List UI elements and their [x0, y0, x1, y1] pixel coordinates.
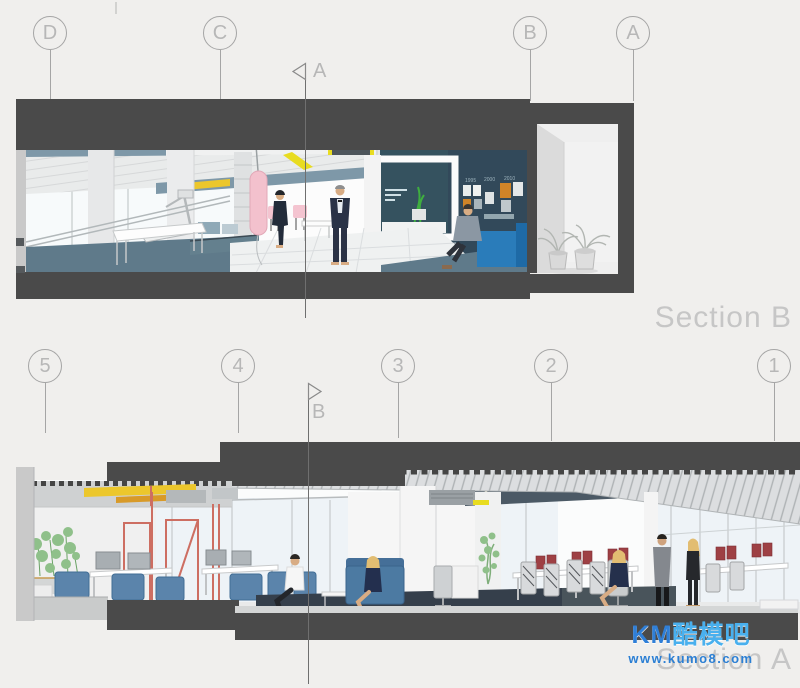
watermark-brand-cjk: 酷模吧 [672, 621, 750, 649]
watermark-brand-latin: KM [632, 621, 673, 649]
drawing-sheet: D C B A 5 4 3 2 1 [0, 0, 800, 688]
grid-stem-a [633, 50, 634, 101]
vestibule [527, 124, 618, 274]
section-b-title: Section B [555, 301, 792, 335]
watermark-url: www.kumo8.com [596, 652, 786, 666]
monitor [716, 547, 725, 560]
watermark: KM酷模吧 www.kumo8.com [596, 622, 786, 666]
grid-bubble-4: 4 [221, 349, 255, 383]
grid-stem-c [220, 50, 221, 100]
timeline-year: 1995 [465, 178, 476, 184]
section-cut-label-b: B [312, 401, 325, 424]
monitor [727, 546, 736, 559]
bottom-slab [16, 272, 530, 299]
grid-stem-b [530, 50, 531, 101]
section-b-drawing: 1995 2000 2010 [16, 95, 634, 301]
timeline-year: 2000 [484, 177, 495, 183]
grid-stem-1 [774, 383, 775, 441]
grid-bubble-a: A [616, 16, 650, 50]
timeline-year: 2010 [504, 176, 515, 182]
top-slab [16, 99, 530, 150]
grid-bubble-b: B [513, 16, 547, 50]
section-a-drawing [16, 440, 800, 640]
monitor [206, 550, 226, 565]
cabinet [452, 566, 478, 598]
section-arrow-a [293, 64, 306, 80]
grid-stem-d [50, 50, 51, 100]
monitor [763, 543, 772, 556]
grid-stem-5 [45, 383, 46, 433]
watermark-brand: KM酷模吧 [596, 622, 786, 650]
top-slab [220, 442, 800, 470]
left-roof-band [30, 481, 238, 507]
grid-stem-2 [551, 383, 552, 441]
monitor [96, 552, 120, 569]
grid-bubble-2: 2 [534, 349, 568, 383]
grid-stem-4 [238, 383, 239, 433]
grid-bubble-c: C [203, 16, 237, 50]
grid-bubble-5: 5 [28, 349, 62, 383]
monitor [752, 544, 761, 557]
monitor [232, 551, 251, 565]
section-arrow-b [309, 384, 322, 400]
grid-stem-3 [398, 383, 399, 438]
grid-bubble-d: D [33, 16, 67, 50]
section-cut-label-a: A [313, 60, 326, 83]
monitor [128, 553, 150, 569]
grid-bubble-1: 1 [757, 349, 791, 383]
grid-bubble-3: 3 [381, 349, 415, 383]
